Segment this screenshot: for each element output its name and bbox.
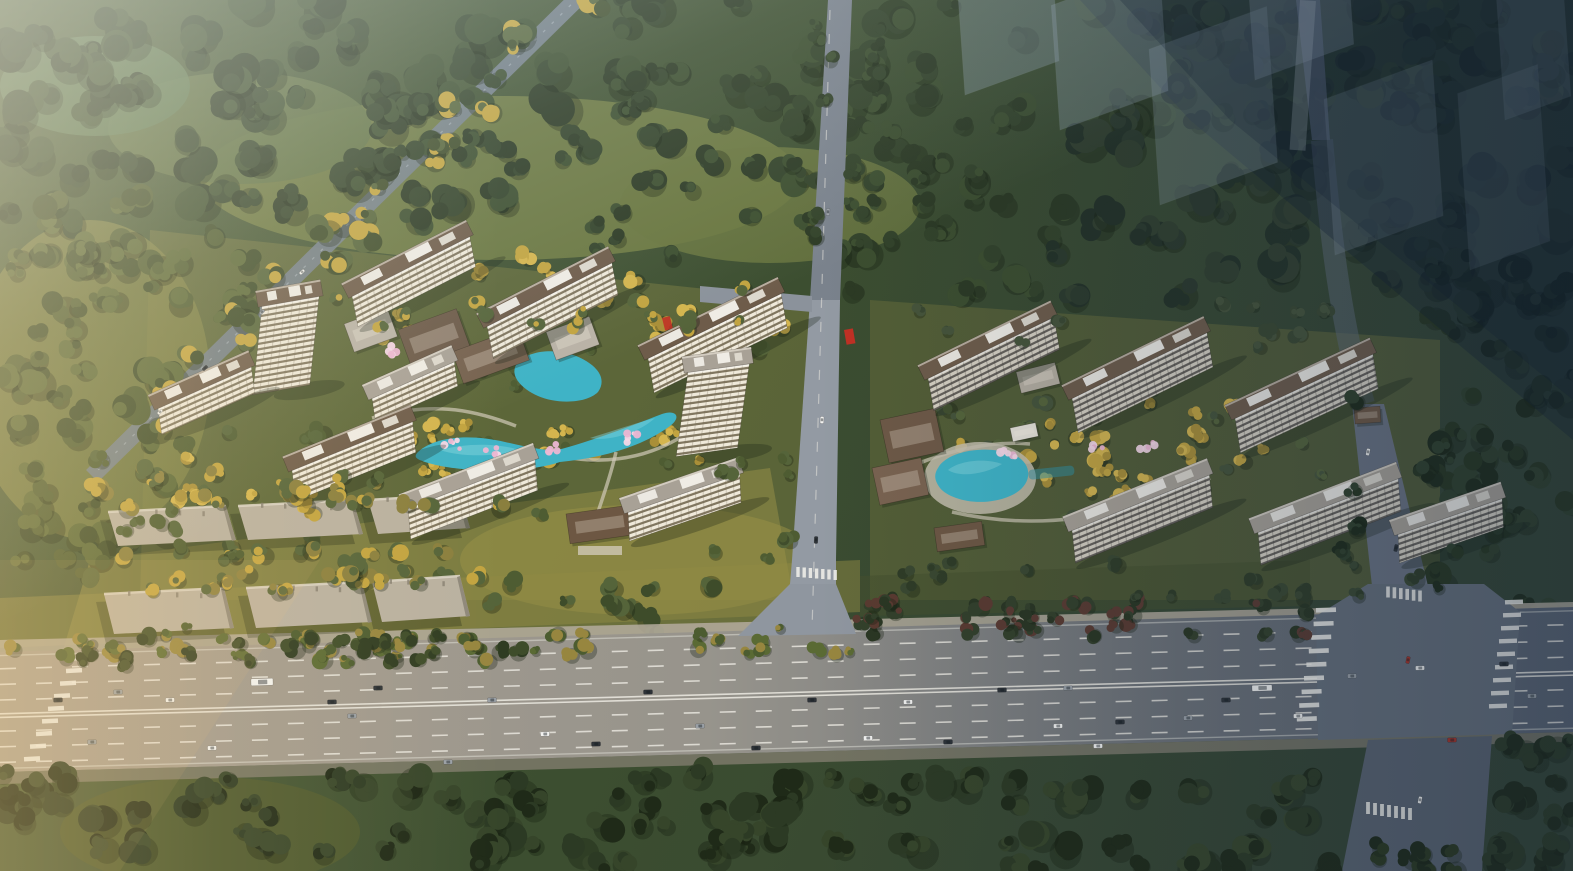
rendering-canvas: Aerial rendering of a residential develo… — [0, 0, 1573, 871]
aerial-rendering: Aerial rendering of a residential develo… — [0, 0, 1573, 871]
